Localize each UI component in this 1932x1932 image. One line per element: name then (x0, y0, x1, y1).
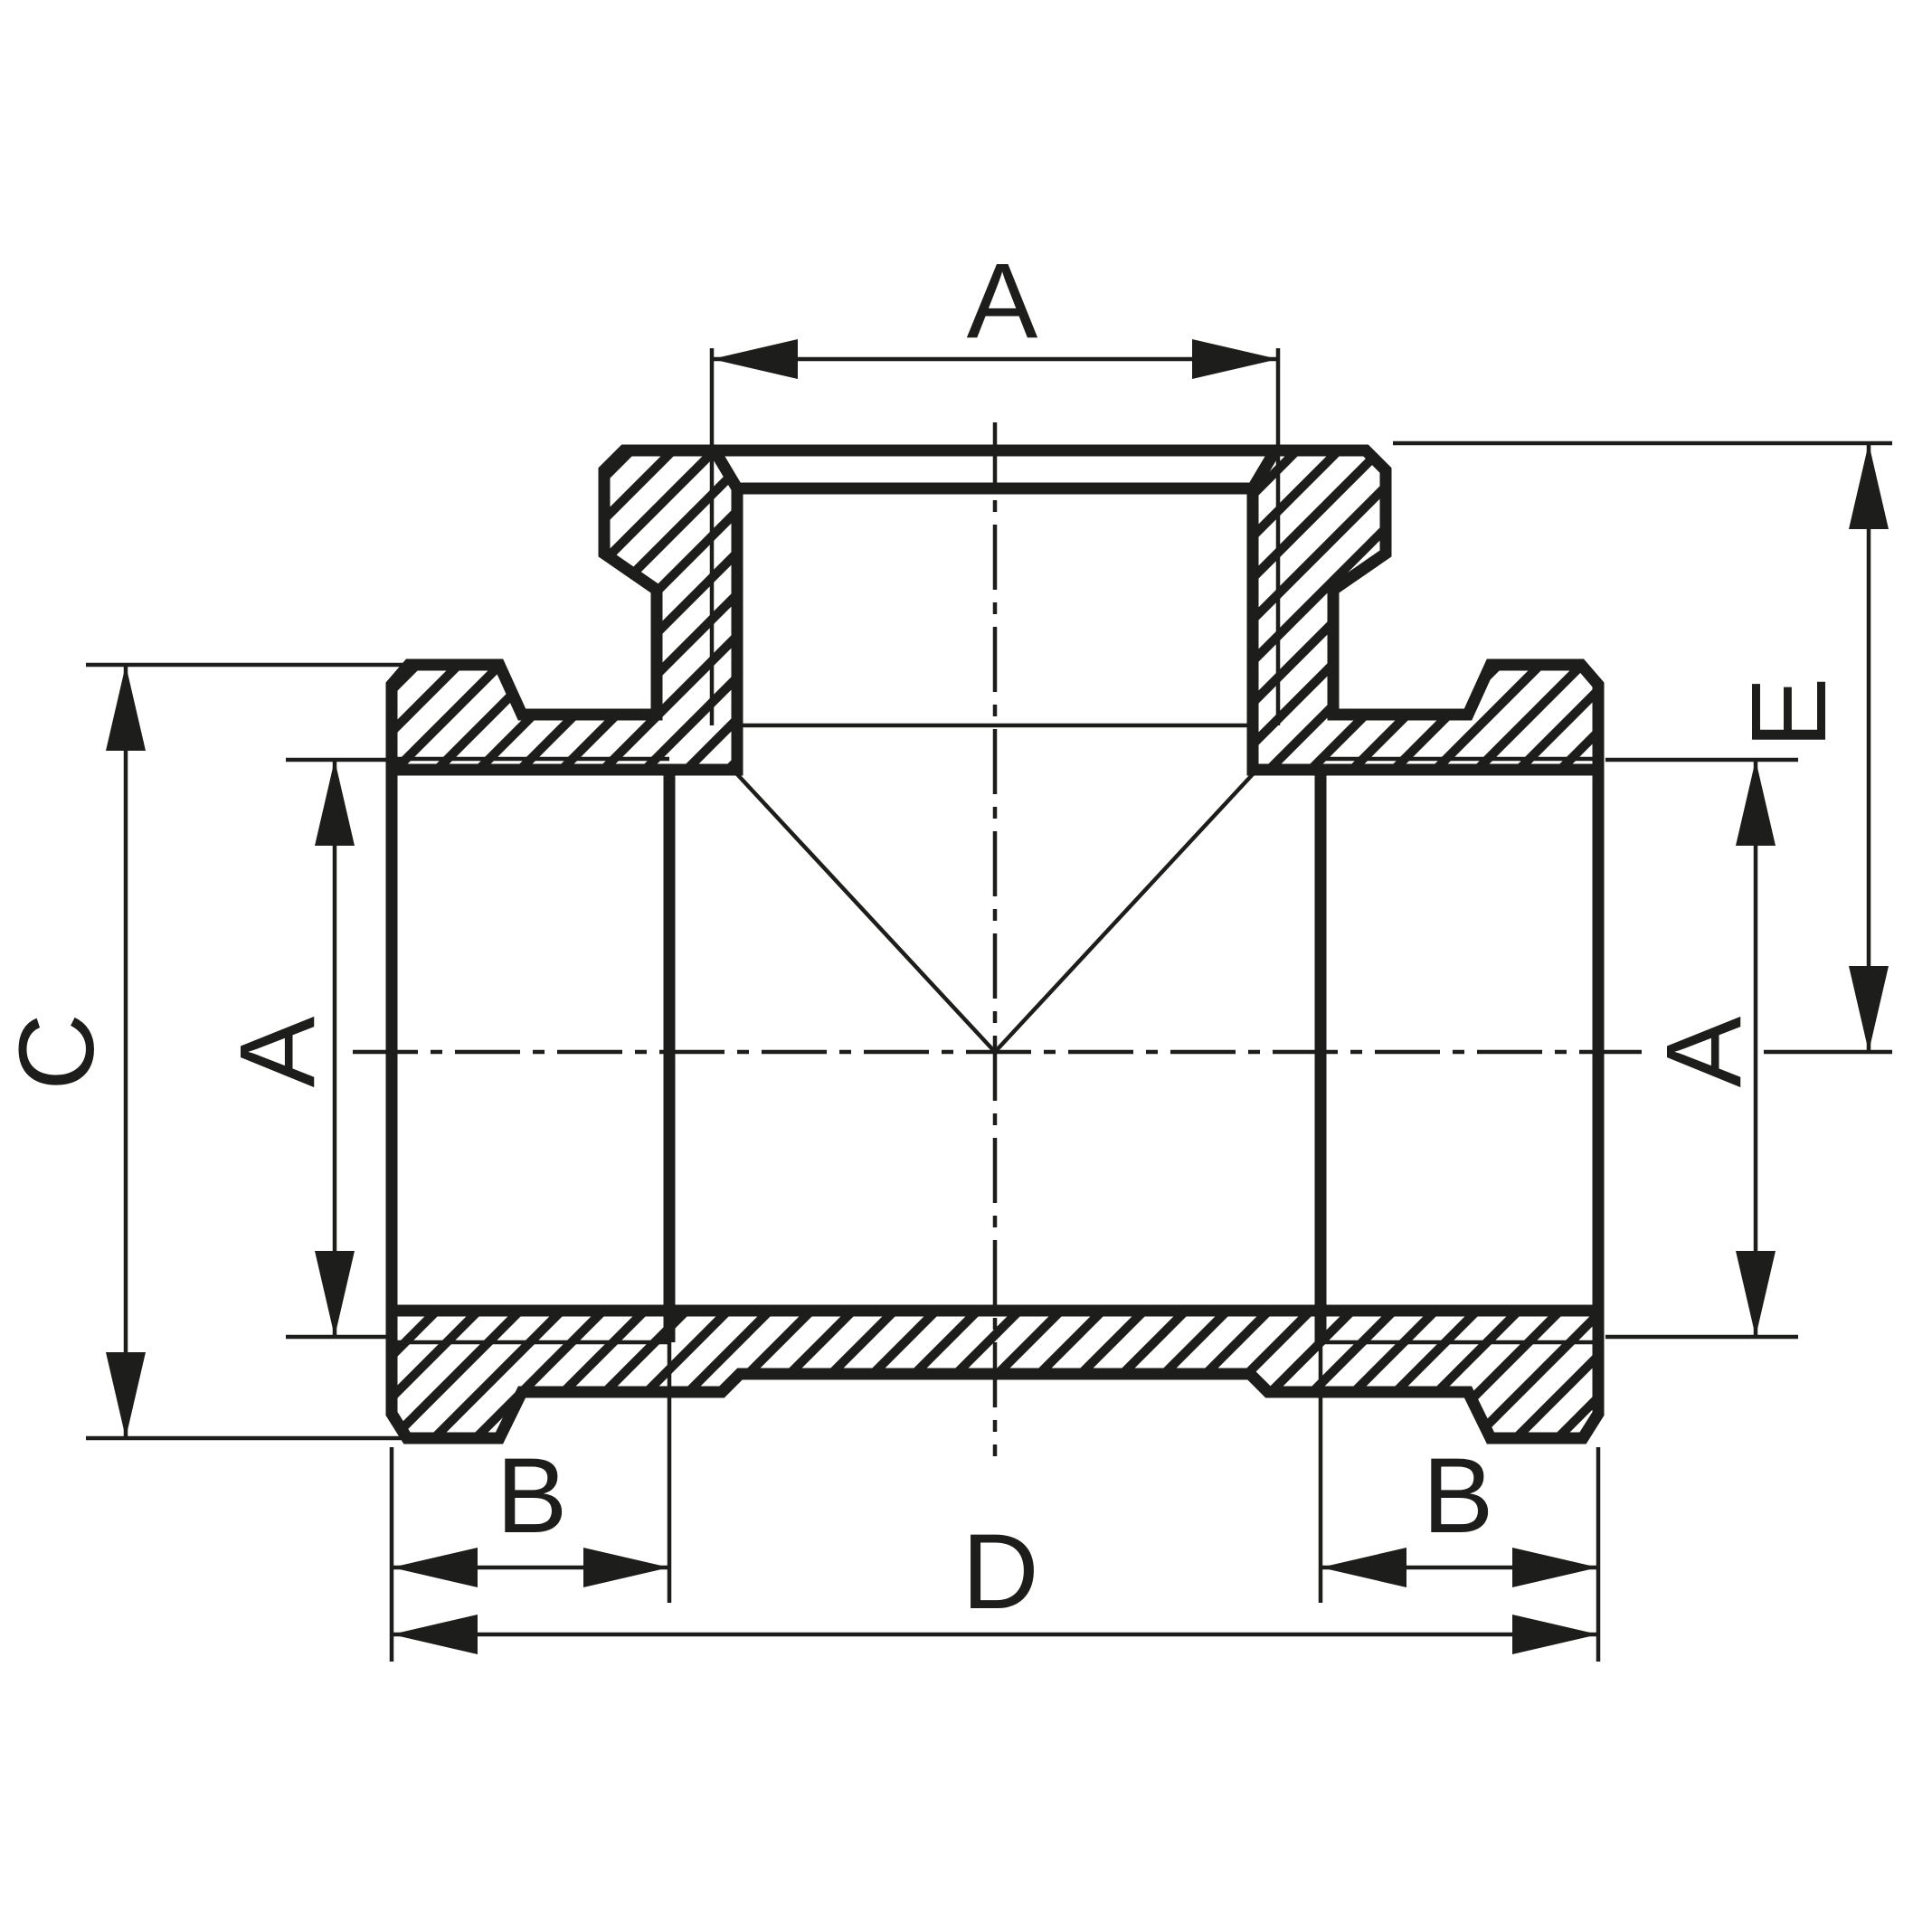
arrowhead-left (392, 1548, 478, 1587)
dim-label-a-top: A (967, 241, 1038, 361)
arrowhead-left (1321, 1548, 1406, 1587)
technical-drawing-page: A C A A E B B (0, 0, 1932, 1932)
dimension-e: E (1729, 443, 1889, 1052)
dimension-a-right: A (1644, 760, 1776, 1337)
dim-label-e: E (1729, 677, 1849, 749)
arrowhead-down (106, 1352, 146, 1438)
dim-label-c: C (0, 1013, 117, 1090)
dim-label-a-left: A (218, 1016, 337, 1087)
tee-body-left-upper-wall (392, 450, 737, 770)
dimension-b-right: B (1321, 1436, 1598, 1587)
tee-body-right-upper-wall (1253, 450, 1598, 770)
dimension-a-left: A (218, 760, 355, 1337)
arrowhead-right (1512, 1615, 1598, 1654)
arrowhead-down (1736, 1251, 1776, 1337)
arrowhead-left (392, 1615, 478, 1654)
arrowhead-right (583, 1548, 669, 1587)
dim-label-a-right: A (1644, 1016, 1764, 1087)
dimension-c: C (0, 665, 146, 1438)
centerlines (353, 422, 1642, 1456)
arrowhead-down (1849, 966, 1889, 1052)
arrowhead-up (106, 665, 146, 751)
dimension-d: D (392, 1512, 1598, 1654)
dim-label-d: D (961, 1512, 1038, 1632)
dim-label-b-left: B (497, 1436, 568, 1556)
arrowhead-right (1512, 1548, 1598, 1587)
arrowhead-up (1736, 760, 1776, 846)
arrowhead-right (1192, 339, 1278, 379)
arrowhead-up (315, 760, 355, 846)
arrowhead-left (712, 339, 798, 379)
tee-body-bottom-wall (392, 1311, 1598, 1438)
dim-label-b-right: B (1423, 1436, 1494, 1556)
dimension-b-left: B (392, 1436, 669, 1587)
arrowhead-up (1849, 443, 1889, 529)
tee-fitting-drawing-canvas: A C A A E B B (0, 0, 1932, 1932)
extension-lines (86, 348, 1892, 1662)
arrowhead-down (315, 1251, 355, 1337)
dimension-a-top: A (712, 241, 1278, 379)
